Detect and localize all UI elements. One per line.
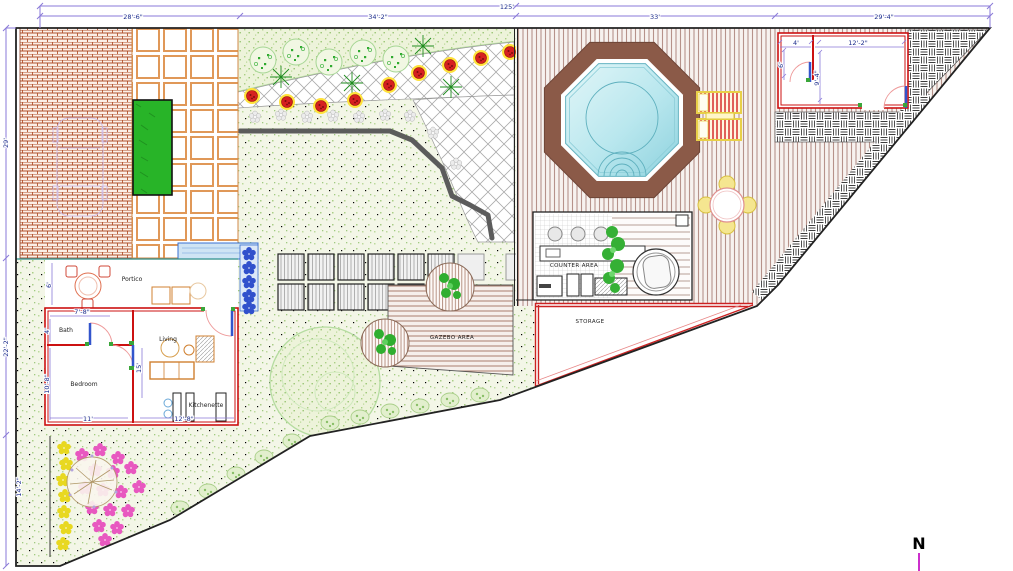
dim-kitchen-width: 12'-8" — [174, 415, 194, 423]
deck-post — [676, 215, 688, 226]
dim-top-seg-2: 34'-2" — [368, 13, 388, 21]
living-label: Living — [159, 336, 177, 343]
paver-court — [132, 28, 238, 258]
dim-pool-house-main-width: 12'-2" — [848, 39, 868, 47]
dim-bedroom-width: 11' — [83, 415, 93, 423]
sofa — [150, 362, 194, 379]
dim-top-total: 125' — [500, 3, 514, 11]
dim-pool-house-left-depth: 6' — [777, 62, 785, 68]
dim-left-seg-1: 29' — [2, 138, 10, 148]
dim-living-depth: 15' — [135, 363, 143, 373]
driveway-brick — [20, 28, 132, 258]
desk — [196, 336, 214, 362]
north-label: N — [912, 534, 925, 553]
outdoor-kitchen: COUNTER AREA — [533, 212, 692, 300]
dim-bedroom-depth: 10'-8" — [43, 374, 51, 394]
storage-label: STORAGE — [576, 319, 605, 325]
dim-left-seg-3: 14'-2" — [15, 477, 23, 497]
dim-pool-house-main-depth: 9'-4" — [813, 70, 821, 85]
dim-left-seg-2: 22'-2" — [2, 337, 10, 357]
counter-area-label: COUNTER AREA — [550, 263, 598, 269]
bath-label: Bath — [59, 327, 73, 334]
dim-pool-house-left-width: 4' — [793, 39, 799, 47]
bedroom-label: Bedroom — [70, 381, 97, 388]
hedge — [133, 100, 172, 195]
landscape-plan-drawing: GAZEBO AREA — [0, 0, 1013, 571]
spa — [633, 249, 679, 295]
dim-top-seg-4: 29'-4" — [874, 13, 894, 21]
gazebo-planter — [426, 263, 474, 311]
desk-chair — [184, 345, 194, 355]
cabinet — [581, 274, 593, 296]
north-arrow: N — [912, 534, 925, 571]
gazebo-area-label: GAZEBO AREA — [430, 335, 474, 341]
bar-stools — [548, 227, 608, 241]
gazebo-planter — [361, 319, 409, 367]
blue-flower-strip — [240, 245, 258, 314]
pool-house: 4' 12'-2" 6' 9'-4" — [777, 33, 908, 110]
cabinet — [567, 274, 579, 296]
portico-label: Portico — [122, 276, 143, 283]
dim-top-seg-1: 28'-6" — [123, 13, 143, 21]
dim-top-seg-3: 33' — [650, 13, 660, 21]
side-table — [706, 113, 734, 119]
counter-bar — [540, 246, 645, 261]
dim-bath-depth: 4' — [43, 328, 51, 334]
dim-portico-depth: 6' — [45, 282, 53, 288]
sink-bowl — [164, 399, 172, 407]
armchair — [172, 287, 190, 304]
dim-bath-width: 7'-8" — [74, 308, 89, 316]
site-plan-canvas: GAZEBO AREA — [0, 0, 1013, 571]
kitchenette-label: Kitchenette — [189, 402, 224, 409]
sink-bowl — [164, 410, 172, 418]
armchair — [152, 287, 170, 304]
pool — [544, 42, 699, 197]
